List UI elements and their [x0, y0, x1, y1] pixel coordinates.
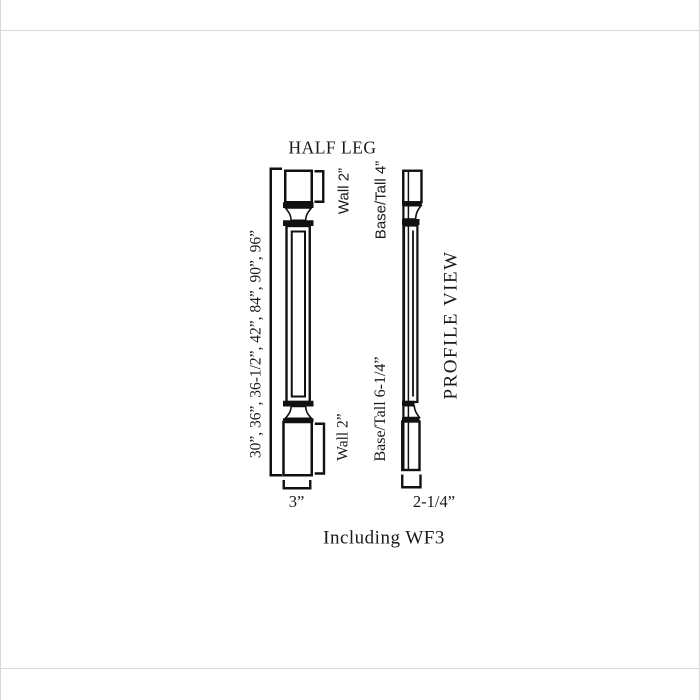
base-tall-top-label: Base/Tall 4”: [374, 161, 389, 239]
including-note: Including WF3: [323, 528, 445, 547]
front-bottom-neck: [286, 407, 312, 419]
front-bottom-block: [284, 422, 312, 475]
front-shaft-outer: [287, 226, 310, 402]
wall-bottom-label: Wall 2”: [335, 413, 351, 460]
profile-top-neck: [404, 206, 422, 219]
depth-dimension-label: 2-1/4”: [413, 494, 455, 511]
wall-bottom-bracket: [315, 424, 324, 474]
height-bracket: [271, 169, 282, 476]
depth-bracket: [402, 475, 420, 488]
profile-bottom-neck: [404, 406, 420, 418]
profile-top-block: [403, 171, 421, 203]
diagram-title: HALF LEG: [288, 139, 376, 157]
front-top-band-1: [283, 202, 314, 208]
profile-view-label: PROFILE VIEW: [441, 250, 460, 399]
profile-shaft: [404, 226, 417, 403]
wall-top-bracket: [315, 171, 324, 202]
leg-diagram-line-art: [0, 0, 700, 700]
front-top-neck: [286, 208, 312, 220]
image-frame: [0, 0, 700, 700]
profile-top-band-2: [402, 219, 420, 225]
profile-bottom-block: [402, 422, 419, 471]
front-view-drawing: [271, 169, 324, 489]
wall-top-label: Wall 2”: [337, 168, 352, 214]
front-bottom-band-1: [283, 401, 314, 407]
base-tall-bottom-label: Base/Tall 6-1/4”: [373, 356, 389, 461]
profile-view-drawing: [402, 171, 422, 488]
width-bracket: [284, 480, 311, 488]
product-diagram-image: HALF LEG 30”, 36”, 36-1/2”, 42”, 84”, 90…: [0, 0, 700, 700]
width-dimension-label: 3”: [289, 494, 305, 511]
available-heights-label: 30”, 36”, 36-1/2”, 42”, 84”, 90”, 96”: [248, 229, 264, 457]
front-top-block: [285, 171, 312, 203]
